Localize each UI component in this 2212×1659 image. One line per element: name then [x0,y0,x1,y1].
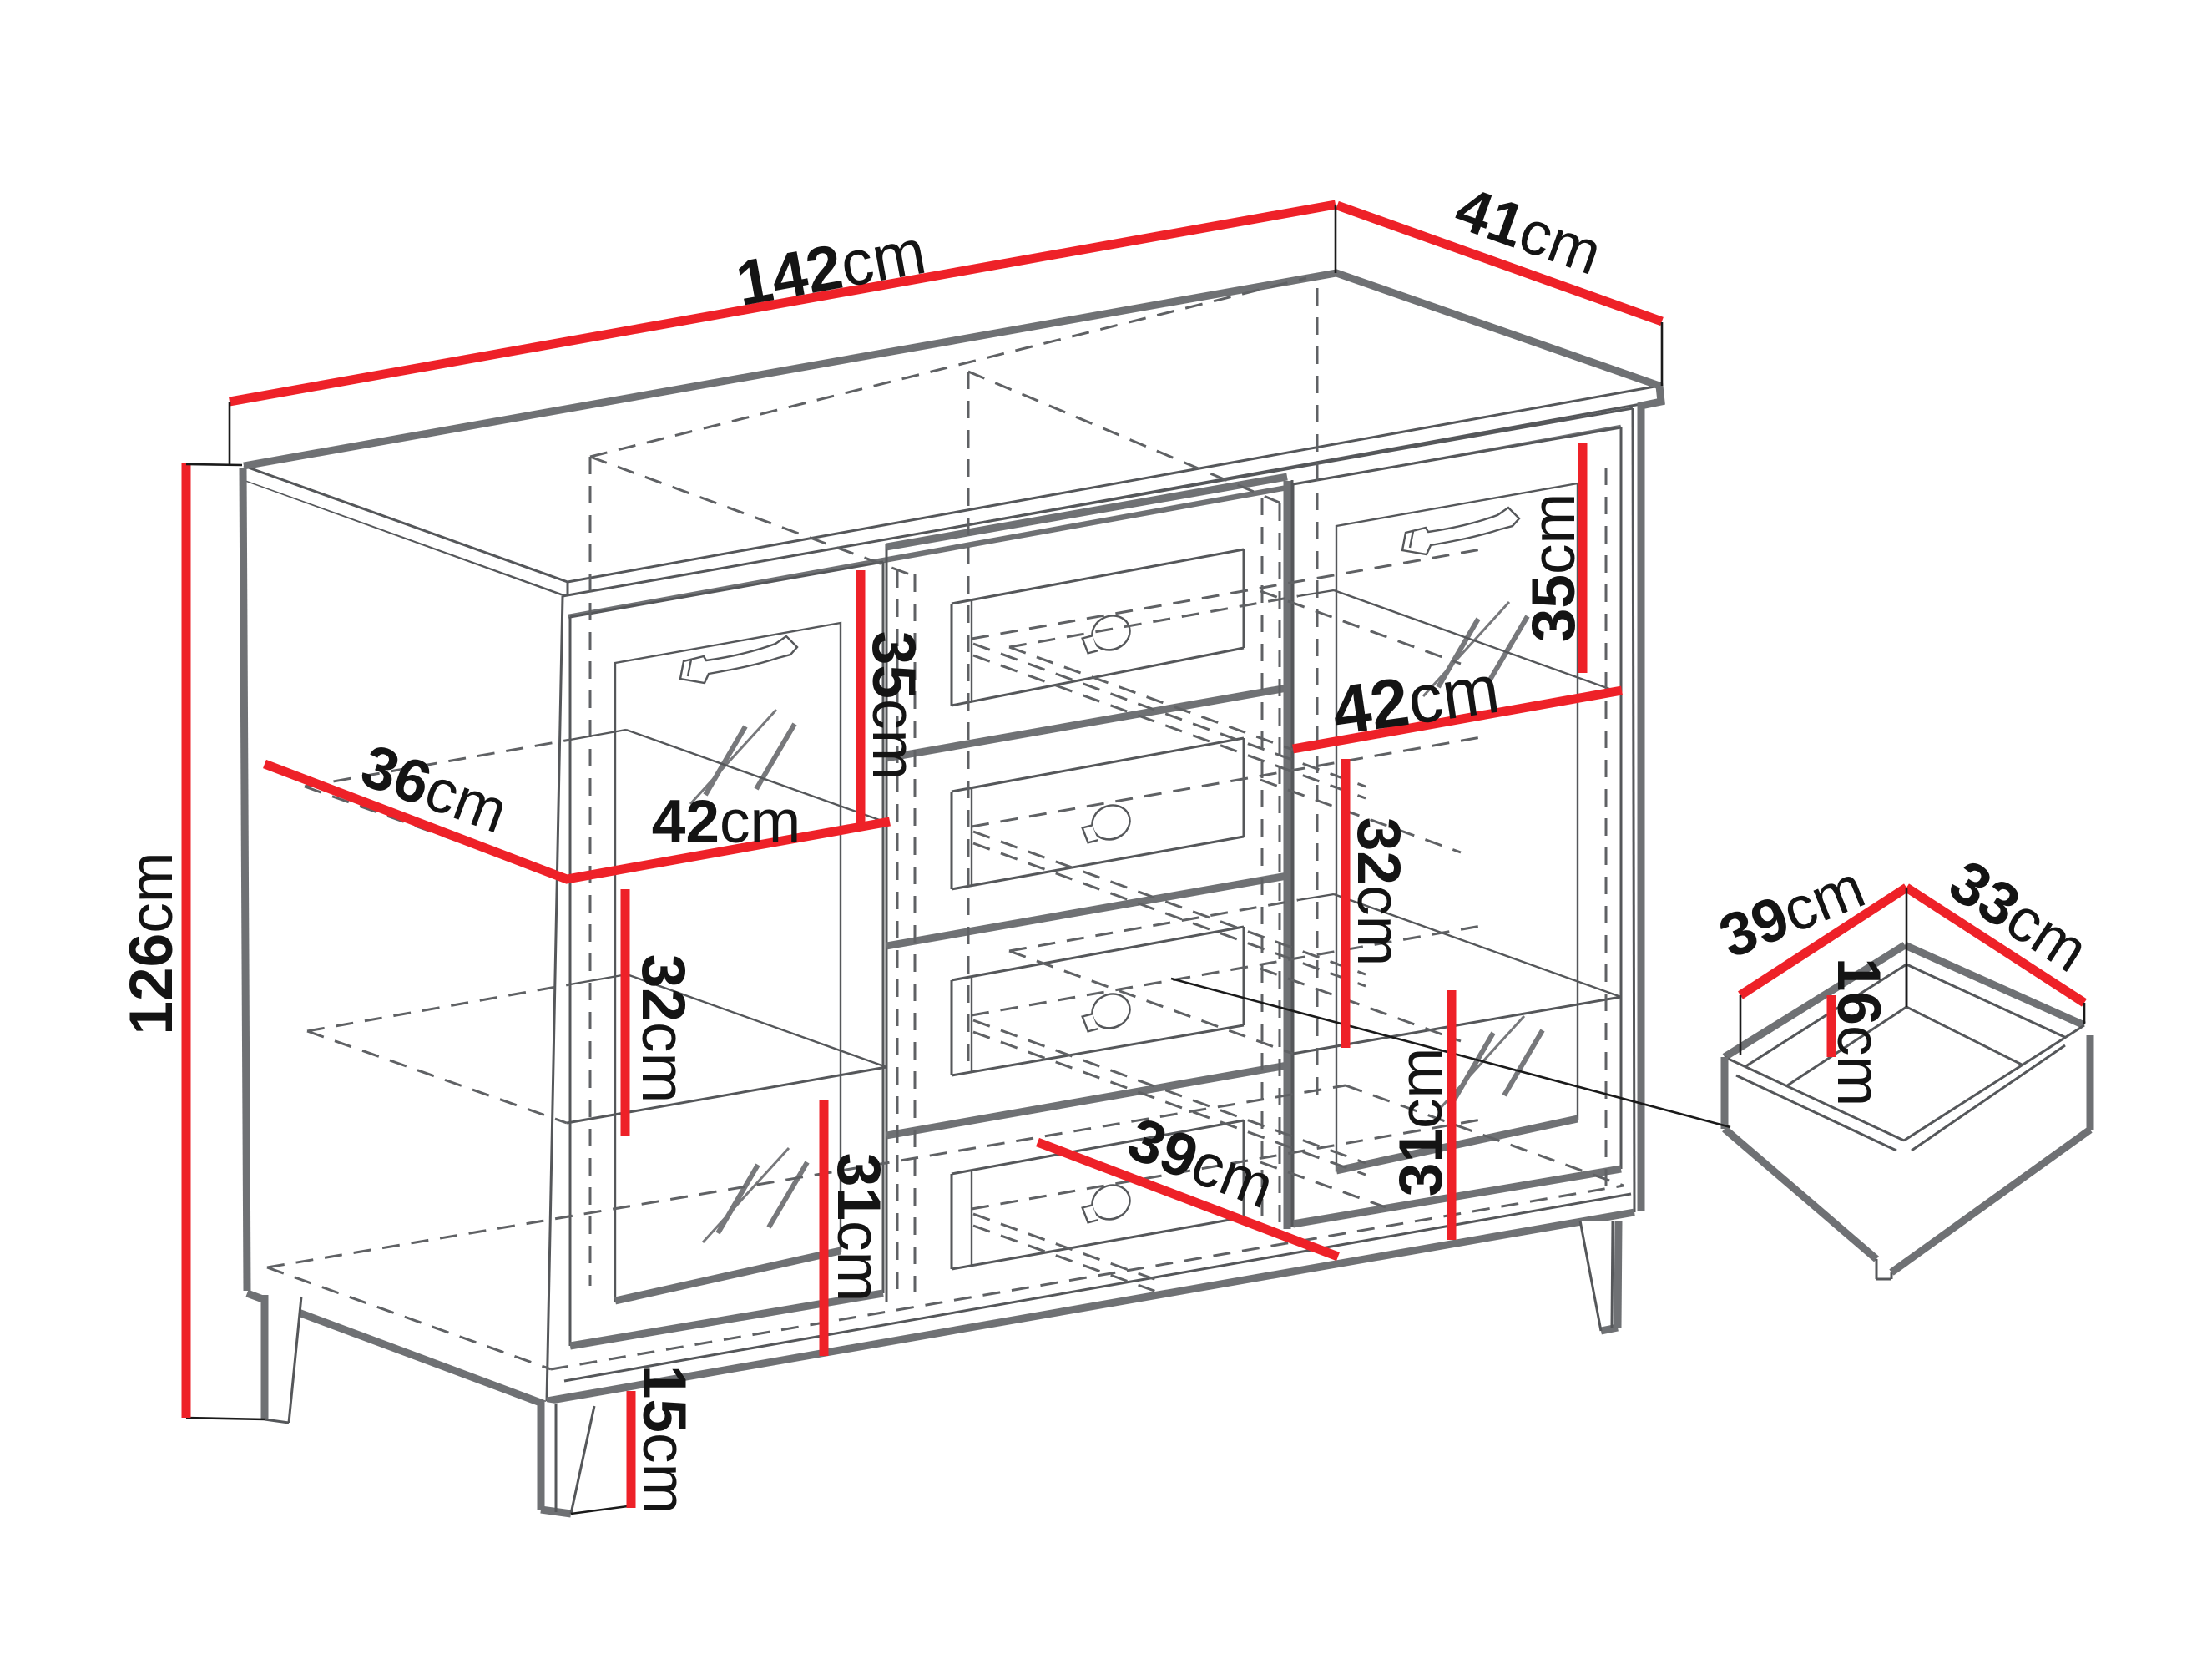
svg-text:32cm: 32cm [629,954,697,1104]
svg-text:42cm: 42cm [652,788,801,856]
svg-text:35cm: 35cm [860,631,927,781]
svg-text:15cm: 15cm [630,1365,698,1515]
svg-text:32cm: 32cm [1345,817,1412,967]
svg-text:31cm: 31cm [825,1153,892,1302]
svg-text:126cm: 126cm [118,852,185,1034]
svg-text:35cm: 35cm [1520,493,1588,643]
svg-text:31cm: 31cm [1387,1048,1455,1197]
svg-text:16cm: 16cm [1825,958,1892,1107]
